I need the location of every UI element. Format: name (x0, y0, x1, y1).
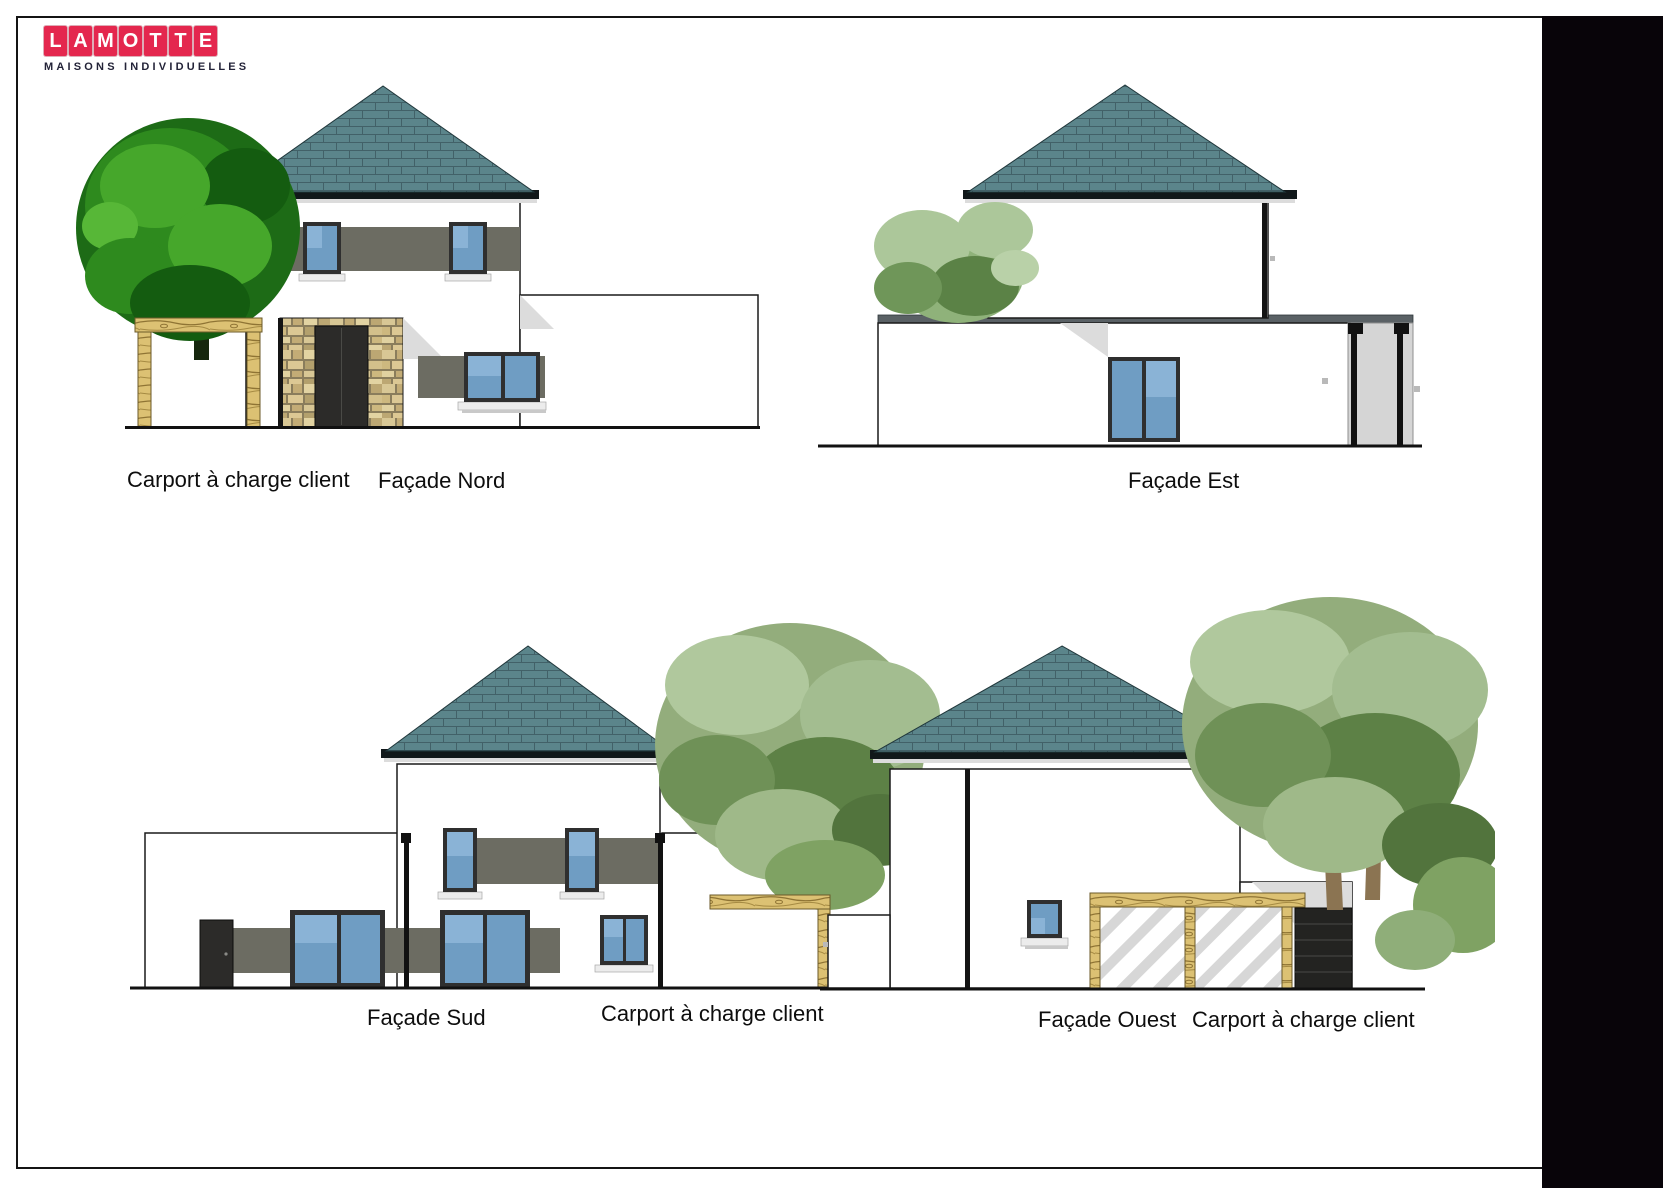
ouest-carport-note: Carport à charge client (1192, 1007, 1415, 1033)
sud-upper-window (438, 828, 482, 899)
ouest-wall-vent (823, 942, 828, 947)
est-wall-vent (1414, 386, 1420, 392)
logo-letter-tile: T (169, 26, 192, 56)
ouest-carport (1090, 893, 1305, 988)
nord-upper-window (445, 222, 491, 281)
logo-letter-tile: T (144, 26, 167, 56)
ouest-garage-door (1295, 908, 1352, 988)
nord-upper-window (299, 222, 345, 281)
ouest-garden-wall (828, 915, 890, 988)
sud-sliding-door (290, 910, 385, 988)
facade-ouest-drawing (815, 590, 1495, 992)
nord-house (228, 86, 758, 427)
sud-service-door (200, 920, 233, 988)
est-roof (963, 85, 1297, 203)
sud-carport-note: Carport à charge client (601, 1001, 824, 1027)
sud-upper-window (560, 828, 604, 899)
sud-title: Façade Sud (367, 1005, 486, 1031)
nord-carport-note: Carport à charge client (127, 467, 350, 493)
ouest-downspout (965, 769, 970, 988)
logo-letter-tile: M (94, 26, 117, 56)
sud-roof (381, 646, 676, 762)
sud-sliding-door (440, 910, 530, 988)
ouest-title: Façade Ouest (1038, 1007, 1176, 1033)
nord-title: Façade Nord (378, 468, 505, 494)
scan-black-strip (1542, 16, 1663, 1188)
brand-logo: L A M O T T E MAISONS INDIVIDUELLES (44, 26, 249, 73)
est-wall-vent (1270, 256, 1275, 261)
nord-ground-extension (520, 295, 758, 427)
logo-letter-tile: L (44, 26, 67, 56)
brand-logo-tiles: L A M O T T E (44, 26, 249, 56)
logo-letter-tile: E (194, 26, 217, 56)
nord-ground-window (458, 352, 546, 413)
facade-est-drawing (810, 78, 1440, 453)
est-wall-downspout (1262, 200, 1267, 318)
est-wall-vent (1322, 378, 1328, 384)
elevation-sheet: L A M O T T E MAISONS INDIVIDUELLES (0, 0, 1680, 1188)
nord-entrance-door (315, 326, 368, 427)
logo-letter-tile: A (69, 26, 92, 56)
brand-tagline: MAISONS INDIVIDUELLES (44, 61, 249, 73)
sud-ground-window (595, 915, 653, 972)
facade-nord-drawing (70, 78, 770, 434)
est-bay-window (1108, 357, 1180, 442)
logo-letter-tile: O (119, 26, 142, 56)
est-title: Façade Est (1128, 468, 1239, 494)
ouest-small-window (1021, 900, 1068, 949)
est-side-wall (1348, 323, 1413, 446)
